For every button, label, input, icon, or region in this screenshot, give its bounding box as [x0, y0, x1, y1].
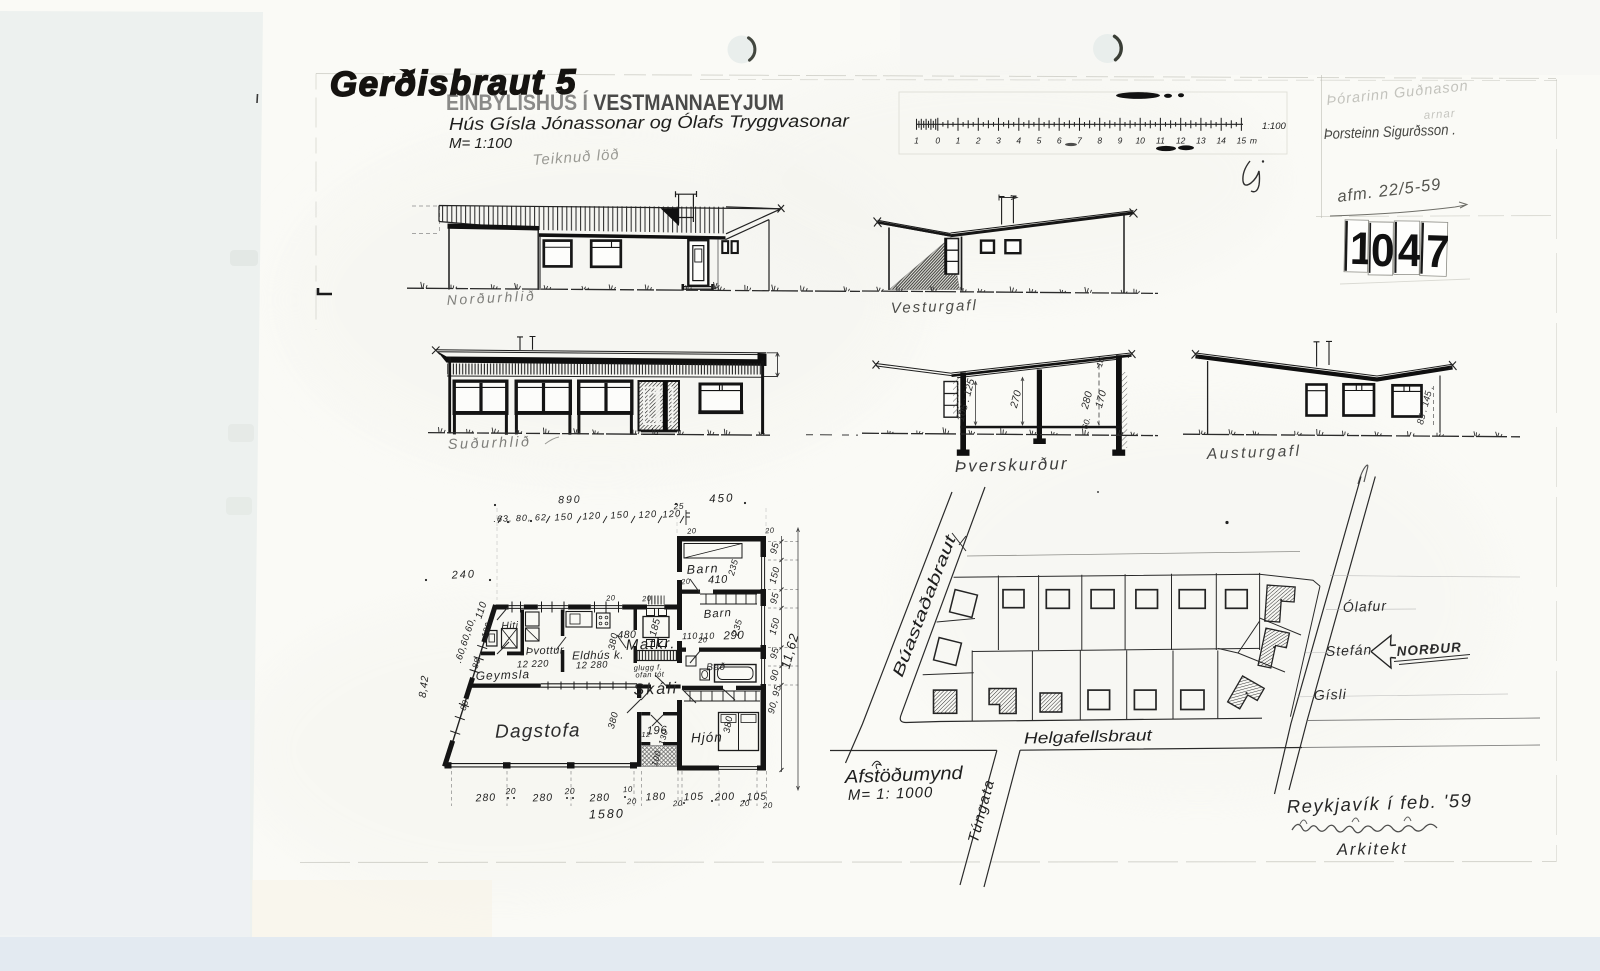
svg-text:0: 0 [935, 136, 940, 146]
svg-text:Þvottur: Þvottur [526, 644, 566, 657]
svg-text:280: 280 [531, 791, 553, 804]
svg-text:14: 14 [1216, 136, 1226, 146]
svg-text:20: 20 [686, 526, 697, 536]
svg-text:12 220: 12 220 [517, 658, 550, 670]
svg-text:4: 4 [1016, 136, 1021, 146]
svg-text:M= 1:100: M= 1:100 [449, 135, 513, 152]
svg-text:120: 120 [582, 510, 602, 522]
svg-text:150: 150 [610, 509, 630, 521]
svg-text:1580: 1580 [589, 806, 625, 821]
svg-text:20: 20 [697, 635, 708, 645]
svg-text:25: 25 [672, 501, 684, 512]
svg-text:ofan tót: ofan tót [635, 669, 665, 679]
svg-text:Ólafur: Ólafur [1343, 597, 1388, 615]
svg-text:200: 200 [713, 790, 735, 803]
svg-text:20: 20 [563, 786, 575, 797]
svg-text:11: 11 [1156, 136, 1165, 146]
svg-text:12: 12 [1176, 136, 1186, 146]
svg-text:Helgafellsbraut: Helgafellsbraut [1024, 727, 1153, 747]
svg-text:3: 3 [996, 136, 1001, 146]
svg-text:150: 150 [554, 511, 574, 523]
svg-text:Dagstofa: Dagstofa [495, 720, 581, 742]
svg-text:Stefán: Stefán [1326, 641, 1373, 659]
svg-text:20: 20 [672, 799, 683, 809]
svg-text:890: 890 [558, 494, 582, 507]
svg-text:Hjón: Hjón [691, 729, 723, 745]
svg-text:20: 20 [762, 801, 773, 811]
svg-text:2: 2 [975, 136, 981, 146]
svg-text:280: 280 [588, 791, 610, 804]
svg-text:5: 5 [1037, 136, 1042, 146]
svg-text:9: 9 [1118, 136, 1123, 146]
svg-text:120: 120 [638, 509, 658, 521]
svg-text:0: 0 [1371, 225, 1395, 276]
svg-text:Arkitekt: Arkitekt [1336, 840, 1408, 859]
svg-text:1: 1 [914, 136, 919, 146]
svg-text:20: 20 [764, 526, 775, 536]
svg-text:13: 13 [1196, 136, 1206, 146]
svg-text:280: 280 [474, 791, 496, 804]
svg-text:110: 110 [682, 631, 698, 642]
svg-text:M= 1: 1000: M= 1: 1000 [848, 784, 934, 804]
svg-text:450: 450 [709, 492, 735, 505]
svg-text:Barn: Barn [703, 607, 732, 621]
svg-text:Bað: Bað [706, 662, 726, 674]
svg-text:Þverskurður: Þverskurður [955, 454, 1069, 476]
svg-text:7: 7 [1425, 226, 1450, 278]
svg-text:20: 20 [626, 797, 637, 807]
svg-text:Vesturgafl: Vesturgafl [891, 297, 979, 317]
svg-text:20: 20 [641, 594, 652, 604]
svg-text:20: 20 [504, 786, 516, 797]
svg-text:12: 12 [641, 730, 651, 739]
svg-text:7: 7 [1077, 136, 1082, 146]
svg-text:20: 20 [605, 593, 616, 603]
svg-text:8: 8 [1097, 136, 1102, 146]
svg-text:240: 240 [450, 568, 476, 581]
svg-text:1:100: 1:100 [1262, 121, 1286, 132]
svg-text:1: 1 [956, 136, 961, 146]
svg-text:10: 10 [1135, 136, 1145, 146]
svg-text:.63, 80, 62,: .63, 80, 62, [493, 512, 550, 524]
svg-text:arnar: arnar [1423, 108, 1456, 122]
svg-text:Skáli: Skáli [633, 680, 678, 699]
svg-text:Austurgafl: Austurgafl [1206, 443, 1302, 463]
svg-text:410: 410 [708, 574, 729, 587]
svg-text:4: 4 [1398, 225, 1422, 276]
svg-text:Suðurhlið: Suðurhlið [448, 434, 532, 453]
svg-text:Gísli: Gísli [1314, 686, 1348, 703]
svg-text:Hús Gísla Jónassonar og Ólafs: Hús Gísla Jónassonar og Ólafs Tryggvason… [449, 109, 850, 134]
svg-text:15: 15 [1237, 136, 1247, 146]
svg-text:m: m [1250, 136, 1257, 146]
svg-text:Afstöðumynd: Afstöðumynd [843, 762, 964, 787]
svg-text:180: 180 [645, 790, 666, 803]
svg-text:6: 6 [1057, 136, 1062, 146]
svg-text:10: 10 [623, 785, 633, 795]
svg-text:12 280: 12 280 [576, 659, 609, 671]
svg-text:105: 105 [683, 790, 704, 803]
svg-text:Hiti: Hiti [501, 620, 519, 633]
svg-text:20: 20 [680, 577, 691, 587]
